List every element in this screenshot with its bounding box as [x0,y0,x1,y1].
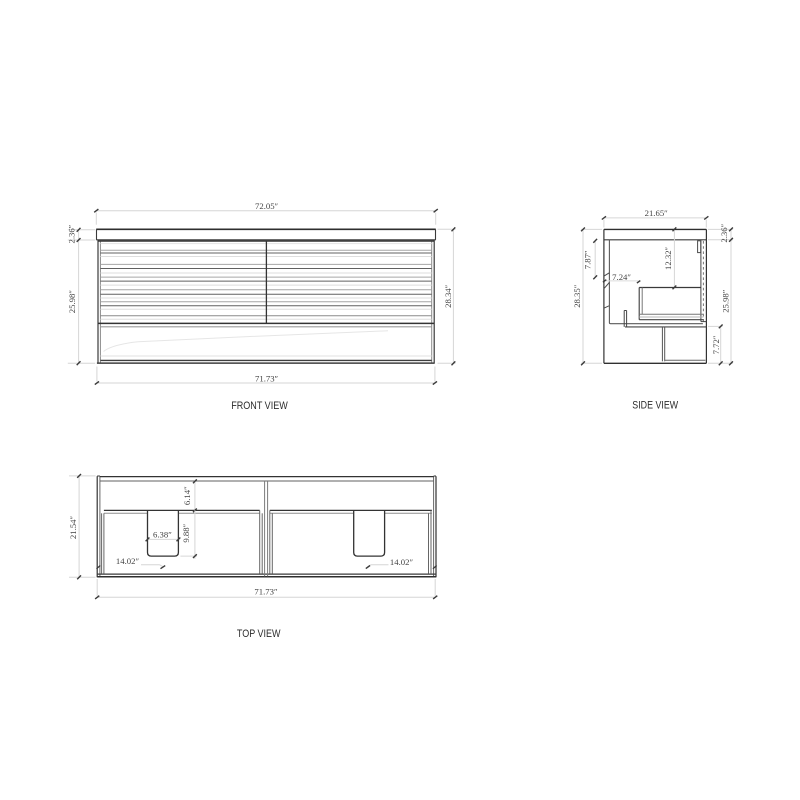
svg-text:7.72″: 7.72″ [711,335,721,354]
svg-text:7.87″: 7.87″ [582,250,592,269]
svg-text:25.98″: 25.98″ [67,290,77,314]
svg-text:TOP VIEW: TOP VIEW [237,628,281,640]
svg-text:21.54″: 21.54″ [68,516,78,540]
svg-text:28.35″: 28.35″ [572,284,582,308]
svg-text:21.65″: 21.65″ [645,208,669,218]
svg-text:2.36″: 2.36″ [67,224,77,243]
svg-text:FRONT VIEW: FRONT VIEW [231,400,288,412]
svg-text:SIDE VIEW: SIDE VIEW [632,399,678,411]
svg-text:6.14″: 6.14″ [182,486,192,505]
svg-text:14.02″: 14.02″ [390,557,414,567]
svg-text:9.88″: 9.88″ [181,523,191,542]
svg-text:6.38″: 6.38″ [153,530,172,540]
svg-text:14.02″: 14.02″ [116,556,140,566]
svg-text:71.73″: 71.73″ [254,587,278,597]
svg-text:28.34″: 28.34″ [443,284,453,308]
svg-text:25.98″: 25.98″ [721,289,731,313]
svg-text:12.32″: 12.32″ [663,246,673,270]
svg-text:2.36″: 2.36″ [719,223,729,242]
svg-text:71.73″: 71.73″ [255,373,279,383]
svg-text:72.05″: 72.05″ [255,201,279,211]
